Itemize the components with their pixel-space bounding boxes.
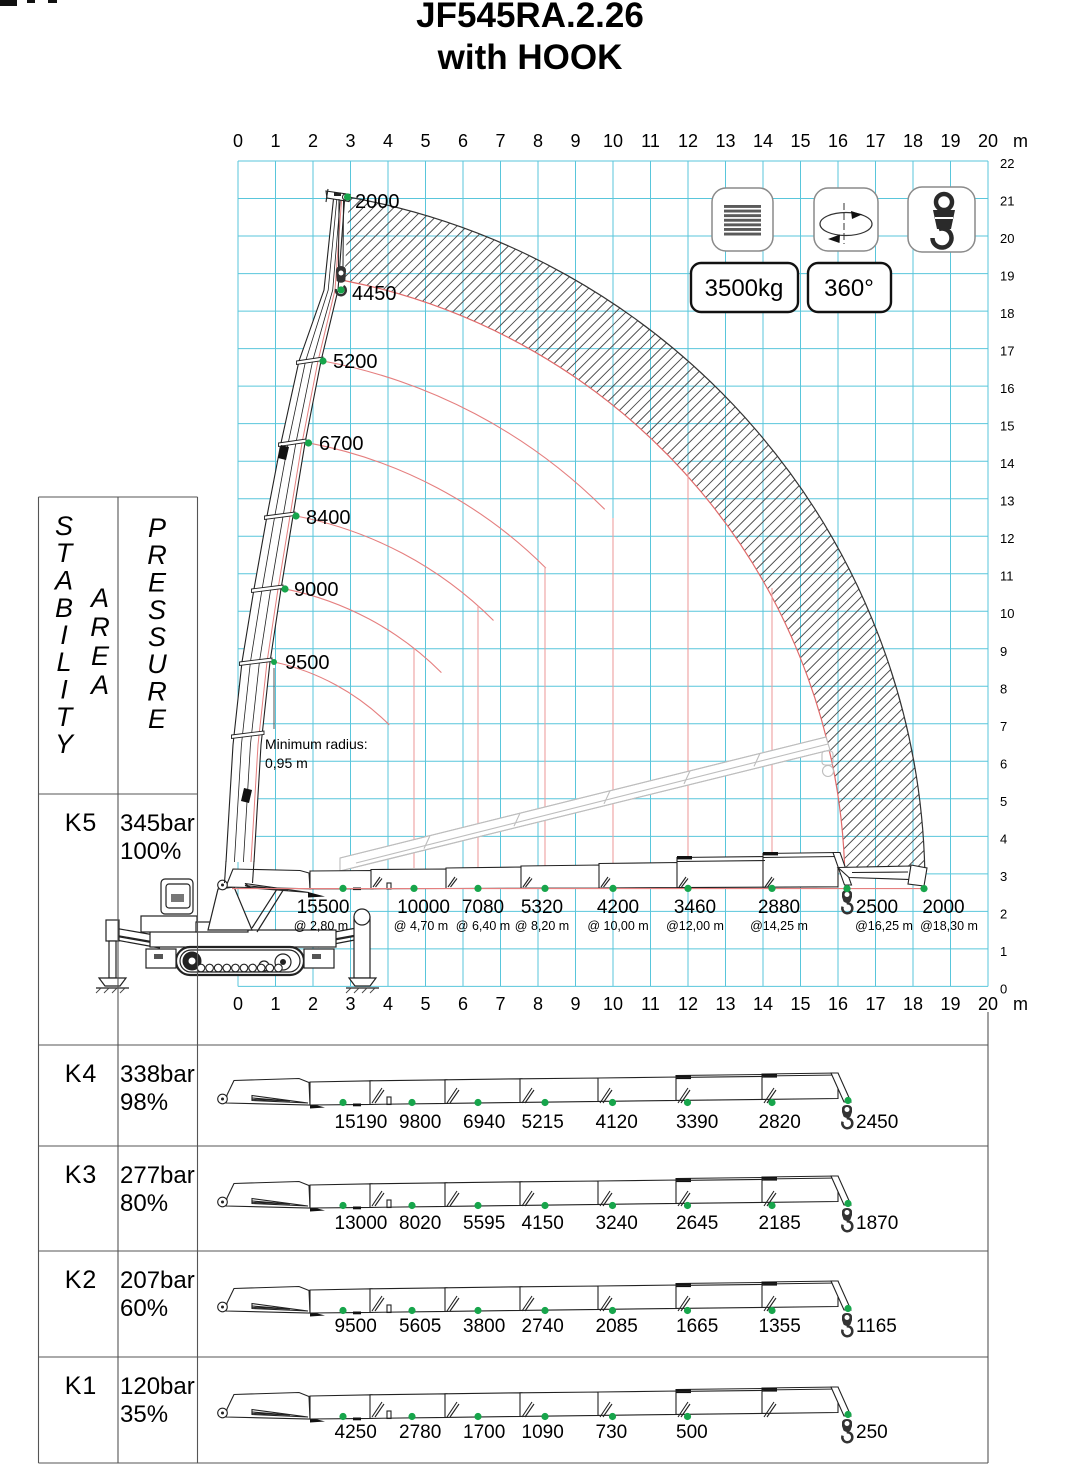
svg-text:4120: 4120 — [596, 1112, 638, 1133]
svg-text:15500: 15500 — [297, 897, 350, 918]
svg-text:3800: 3800 — [463, 1316, 505, 1337]
svg-text:6: 6 — [458, 131, 468, 151]
svg-text:2: 2 — [1000, 906, 1007, 921]
svg-text:0: 0 — [1000, 981, 1007, 996]
svg-text:10: 10 — [603, 131, 623, 151]
svg-text:18: 18 — [1000, 306, 1014, 321]
svg-text:P: P — [148, 513, 166, 543]
svg-text:17: 17 — [865, 994, 885, 1014]
svg-text:@12,00 m: @12,00 m — [666, 919, 724, 933]
svg-text:R: R — [147, 540, 167, 570]
svg-text:4250: 4250 — [335, 1422, 377, 1443]
svg-text:5: 5 — [420, 994, 430, 1014]
svg-text:730: 730 — [596, 1422, 628, 1443]
svg-text:60%: 60% — [120, 1295, 168, 1322]
svg-text:9000: 9000 — [294, 579, 339, 601]
svg-text:2450: 2450 — [856, 1112, 898, 1133]
svg-text:277bar: 277bar — [120, 1162, 195, 1189]
svg-text:6: 6 — [1000, 756, 1007, 771]
svg-text:T: T — [56, 538, 75, 568]
svg-text:U: U — [147, 649, 167, 679]
svg-text:17: 17 — [865, 131, 885, 151]
svg-text:S: S — [148, 622, 166, 652]
svg-text:@ 8,20 m: @ 8,20 m — [515, 919, 569, 933]
svg-text:13: 13 — [715, 131, 735, 151]
svg-text:9800: 9800 — [399, 1112, 441, 1133]
svg-text:3460: 3460 — [674, 897, 716, 918]
svg-text:15190: 15190 — [335, 1112, 388, 1133]
svg-text:19: 19 — [1000, 269, 1014, 284]
svg-text:16: 16 — [828, 994, 848, 1014]
svg-text:20: 20 — [978, 994, 998, 1014]
svg-text:100%: 100% — [120, 838, 181, 865]
svg-text:2: 2 — [308, 131, 318, 151]
svg-text:3: 3 — [1000, 869, 1007, 884]
svg-text:@16,25 m: @16,25 m — [855, 919, 913, 933]
svg-text:8: 8 — [1000, 681, 1007, 696]
svg-text:2880: 2880 — [758, 897, 800, 918]
svg-text:3: 3 — [345, 131, 355, 151]
svg-text:1: 1 — [270, 131, 280, 151]
svg-text:19: 19 — [940, 131, 960, 151]
svg-text:20: 20 — [1000, 231, 1014, 246]
svg-text:12: 12 — [678, 994, 698, 1014]
svg-text:A: A — [89, 670, 109, 700]
svg-text:1090: 1090 — [522, 1422, 564, 1443]
svg-text:7: 7 — [495, 994, 505, 1014]
svg-text:10000: 10000 — [397, 897, 450, 918]
svg-text:m: m — [1013, 131, 1028, 151]
svg-text:18: 18 — [903, 994, 923, 1014]
svg-text:2740: 2740 — [522, 1316, 564, 1337]
svg-text:0: 0 — [233, 994, 243, 1014]
svg-text:B: B — [55, 593, 73, 623]
svg-text:K5: K5 — [65, 809, 98, 837]
svg-text:500: 500 — [676, 1422, 708, 1443]
svg-text:I: I — [60, 620, 68, 650]
svg-text:14: 14 — [753, 131, 773, 151]
svg-text:K2: K2 — [65, 1266, 98, 1294]
svg-text:@ 4,70 m: @ 4,70 m — [394, 919, 448, 933]
svg-text:1700: 1700 — [463, 1422, 505, 1443]
svg-text:@14,25 m: @14,25 m — [750, 919, 808, 933]
svg-text:4200: 4200 — [597, 897, 639, 918]
svg-text:2500: 2500 — [856, 897, 898, 918]
svg-text:T: T — [56, 702, 75, 732]
svg-text:2: 2 — [308, 994, 318, 1014]
svg-text:R: R — [90, 612, 110, 642]
svg-text:1355: 1355 — [759, 1316, 801, 1337]
svg-text:8: 8 — [533, 131, 543, 151]
svg-text:13: 13 — [1000, 494, 1014, 509]
svg-text:9500: 9500 — [285, 652, 330, 674]
svg-text:5: 5 — [420, 131, 430, 151]
svg-text:E: E — [148, 704, 167, 734]
svg-text:338bar: 338bar — [120, 1061, 195, 1088]
svg-text:1165: 1165 — [856, 1316, 897, 1337]
svg-text:3: 3 — [345, 994, 355, 1014]
svg-text:@18,30 m: @18,30 m — [920, 919, 978, 933]
svg-text:11: 11 — [1000, 569, 1014, 584]
svg-text:K3: K3 — [65, 1161, 98, 1189]
svg-text:A: A — [53, 566, 73, 596]
svg-text:6700: 6700 — [319, 433, 364, 455]
svg-text:8020: 8020 — [399, 1213, 441, 1234]
svg-text:13000: 13000 — [335, 1213, 388, 1234]
svg-text:13: 13 — [715, 994, 735, 1014]
svg-text:19: 19 — [940, 994, 960, 1014]
svg-text:1665: 1665 — [676, 1316, 718, 1337]
svg-text:K1: K1 — [65, 1372, 98, 1400]
svg-text:1: 1 — [270, 994, 280, 1014]
svg-text:3390: 3390 — [676, 1112, 718, 1133]
svg-text:1: 1 — [1000, 944, 1007, 959]
svg-text:4: 4 — [383, 994, 393, 1014]
svg-text:17: 17 — [1000, 344, 1014, 359]
svg-text:16: 16 — [1000, 381, 1014, 396]
svg-text:2185: 2185 — [759, 1213, 801, 1234]
svg-text:5: 5 — [1000, 794, 1007, 809]
svg-text:5595: 5595 — [463, 1213, 505, 1234]
svg-text:9: 9 — [1000, 644, 1007, 659]
svg-text:14: 14 — [753, 994, 773, 1014]
svg-text:207bar: 207bar — [120, 1267, 195, 1294]
svg-text:R: R — [147, 677, 167, 707]
svg-text:9: 9 — [570, 131, 580, 151]
svg-text:S: S — [55, 511, 73, 541]
svg-text:1870: 1870 — [856, 1213, 898, 1234]
svg-text:80%: 80% — [120, 1190, 168, 1217]
svg-text:Y: Y — [55, 729, 75, 759]
svg-text:10: 10 — [603, 994, 623, 1014]
svg-text:Minimum radius:: Minimum radius: — [265, 736, 368, 752]
svg-text:4: 4 — [383, 131, 393, 151]
svg-text:11: 11 — [641, 994, 660, 1014]
svg-text:E: E — [91, 641, 110, 671]
svg-text:6: 6 — [458, 994, 468, 1014]
svg-text:98%: 98% — [120, 1089, 168, 1116]
svg-text:2000: 2000 — [922, 897, 964, 918]
svg-text:3240: 3240 — [596, 1213, 638, 1234]
svg-text:9: 9 — [570, 994, 580, 1014]
svg-text:11: 11 — [641, 131, 660, 151]
svg-text:8400: 8400 — [306, 507, 351, 529]
svg-text:345bar: 345bar — [120, 810, 195, 837]
svg-text:360°: 360° — [824, 275, 874, 302]
svg-text:I: I — [60, 675, 68, 705]
svg-text:@ 10,00 m: @ 10,00 m — [587, 919, 648, 933]
svg-text:8: 8 — [533, 994, 543, 1014]
svg-text:5320: 5320 — [521, 897, 563, 918]
svg-text:2085: 2085 — [596, 1316, 638, 1337]
svg-text:20: 20 — [978, 131, 998, 151]
svg-text:5605: 5605 — [399, 1316, 441, 1337]
svg-text:15: 15 — [1000, 419, 1014, 434]
svg-text:K4: K4 — [65, 1060, 98, 1088]
svg-text:m: m — [1013, 994, 1028, 1014]
svg-text:2820: 2820 — [759, 1112, 801, 1133]
svg-text:@ 2,80 m: @ 2,80 m — [294, 919, 348, 933]
svg-text:0,95 m: 0,95 m — [265, 755, 308, 771]
svg-text:2000: 2000 — [355, 191, 400, 213]
svg-text:L: L — [56, 647, 71, 677]
svg-text:6940: 6940 — [463, 1112, 505, 1133]
svg-text:@ 6,40 m: @ 6,40 m — [456, 919, 510, 933]
svg-text:12: 12 — [678, 131, 698, 151]
svg-text:7: 7 — [1000, 719, 1007, 734]
svg-text:16: 16 — [828, 131, 848, 151]
svg-text:21: 21 — [1000, 194, 1014, 209]
svg-text:14: 14 — [1000, 456, 1014, 471]
svg-text:4450: 4450 — [352, 283, 397, 305]
svg-text:120bar: 120bar — [120, 1373, 195, 1400]
svg-text:2780: 2780 — [399, 1422, 441, 1443]
svg-text:250: 250 — [856, 1422, 888, 1443]
svg-text:7080: 7080 — [462, 897, 504, 918]
svg-text:18: 18 — [903, 131, 923, 151]
svg-text:12: 12 — [1000, 531, 1014, 546]
svg-text:4: 4 — [1000, 831, 1007, 846]
svg-text:0: 0 — [233, 131, 243, 151]
svg-text:3500kg: 3500kg — [705, 275, 784, 302]
svg-text:7: 7 — [495, 131, 505, 151]
svg-text:E: E — [148, 568, 167, 598]
svg-text:9500: 9500 — [335, 1316, 377, 1337]
svg-text:5215: 5215 — [522, 1112, 564, 1133]
svg-text:S: S — [148, 595, 166, 625]
svg-text:2645: 2645 — [676, 1213, 718, 1234]
svg-text:35%: 35% — [120, 1401, 168, 1428]
svg-text:5200: 5200 — [333, 351, 378, 373]
svg-text:22: 22 — [1000, 156, 1014, 171]
svg-text:4150: 4150 — [522, 1213, 564, 1234]
svg-text:15: 15 — [790, 994, 810, 1014]
svg-text:15: 15 — [790, 131, 810, 151]
svg-text:10: 10 — [1000, 606, 1014, 621]
svg-text:A: A — [89, 583, 109, 613]
